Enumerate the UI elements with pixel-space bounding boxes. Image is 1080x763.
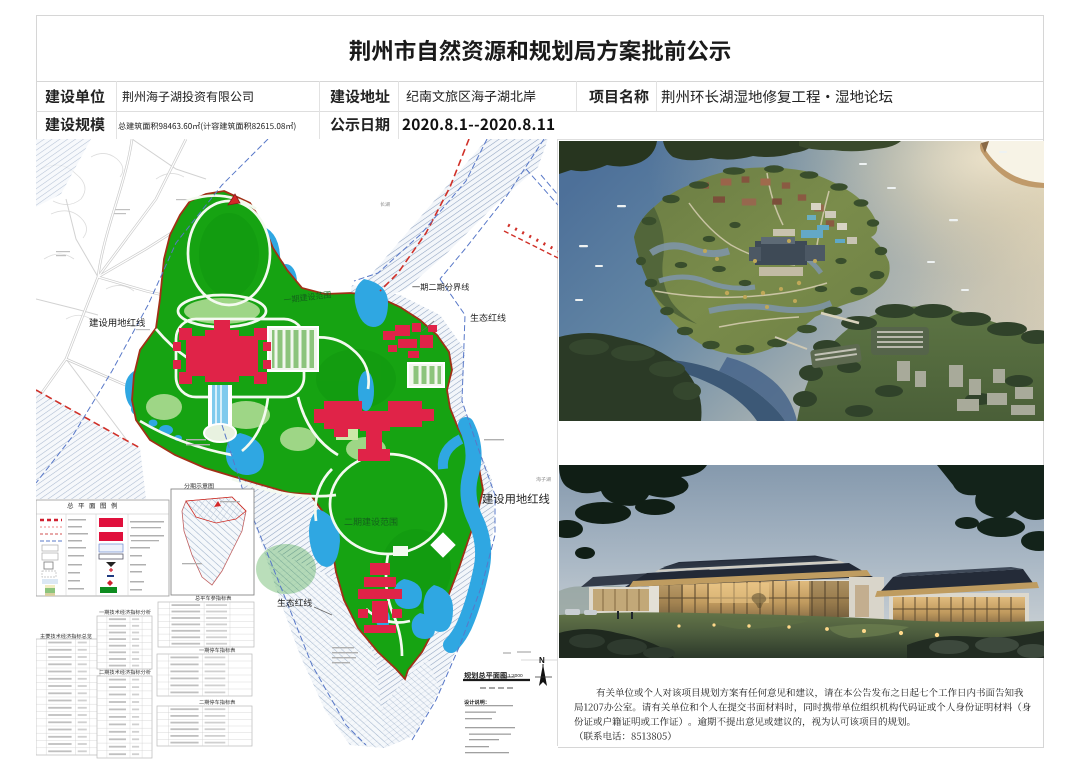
svg-text:1:2000: 1:2000 <box>508 673 523 679</box>
svg-text:N: N <box>539 656 545 665</box>
